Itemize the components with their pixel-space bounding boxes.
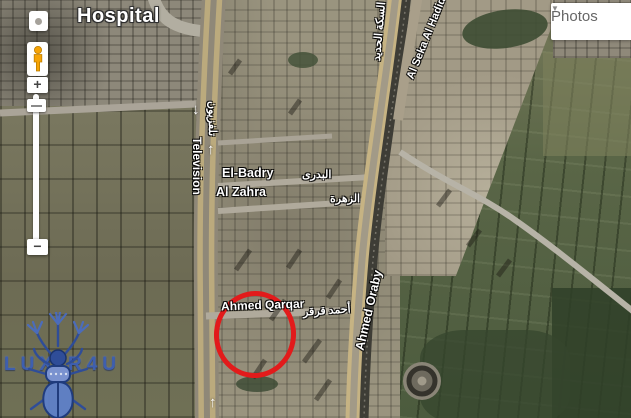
- street-label-ahmed-qarqar: Ahmed Qarqar: [221, 298, 305, 313]
- one-way-arrow-up-icon: ↑: [207, 142, 215, 157]
- road-right-diagonal: [400, 152, 631, 312]
- road-cross-1: [218, 136, 332, 143]
- street-label-television: Television: [191, 137, 203, 195]
- road-television: [206, 0, 214, 418]
- hospital-label: Hospital: [77, 5, 160, 28]
- street-label-al-zahra: Al Zahra: [216, 186, 266, 199]
- chevron-down-icon: ▼: [551, 4, 559, 13]
- map-viewport[interactable]: Hospital Television تلفزيون El-Badry الب…: [0, 0, 631, 418]
- zoom-out-button[interactable]: −: [27, 239, 48, 255]
- slider-grip-icon: [31, 105, 42, 107]
- one-way-arrow-up-icon: ↑: [209, 395, 217, 410]
- pegman-icon: [31, 46, 45, 72]
- street-label-television-arabic: تلفزيون: [206, 101, 217, 136]
- street-label-el-badry: El-Badry: [222, 167, 273, 180]
- pegman-street-view-control[interactable]: [27, 42, 48, 76]
- water-tank: [403, 362, 441, 400]
- zoom-in-button[interactable]: +: [27, 77, 48, 93]
- street-label-el-badry-arabic: البدرى: [302, 170, 331, 181]
- one-way-arrow-down-icon: ↓: [192, 102, 200, 117]
- zoom-slider-track[interactable]: [33, 94, 39, 246]
- compass-dot-icon: [35, 18, 42, 25]
- street-label-al-zahra-arabic: الزهرة: [330, 194, 360, 205]
- compass-button[interactable]: [29, 11, 48, 31]
- zoom-slider-handle[interactable]: [27, 99, 46, 112]
- photos-dropdown-button[interactable]: Photos ▼: [551, 3, 631, 40]
- roads-overlay: [0, 0, 631, 418]
